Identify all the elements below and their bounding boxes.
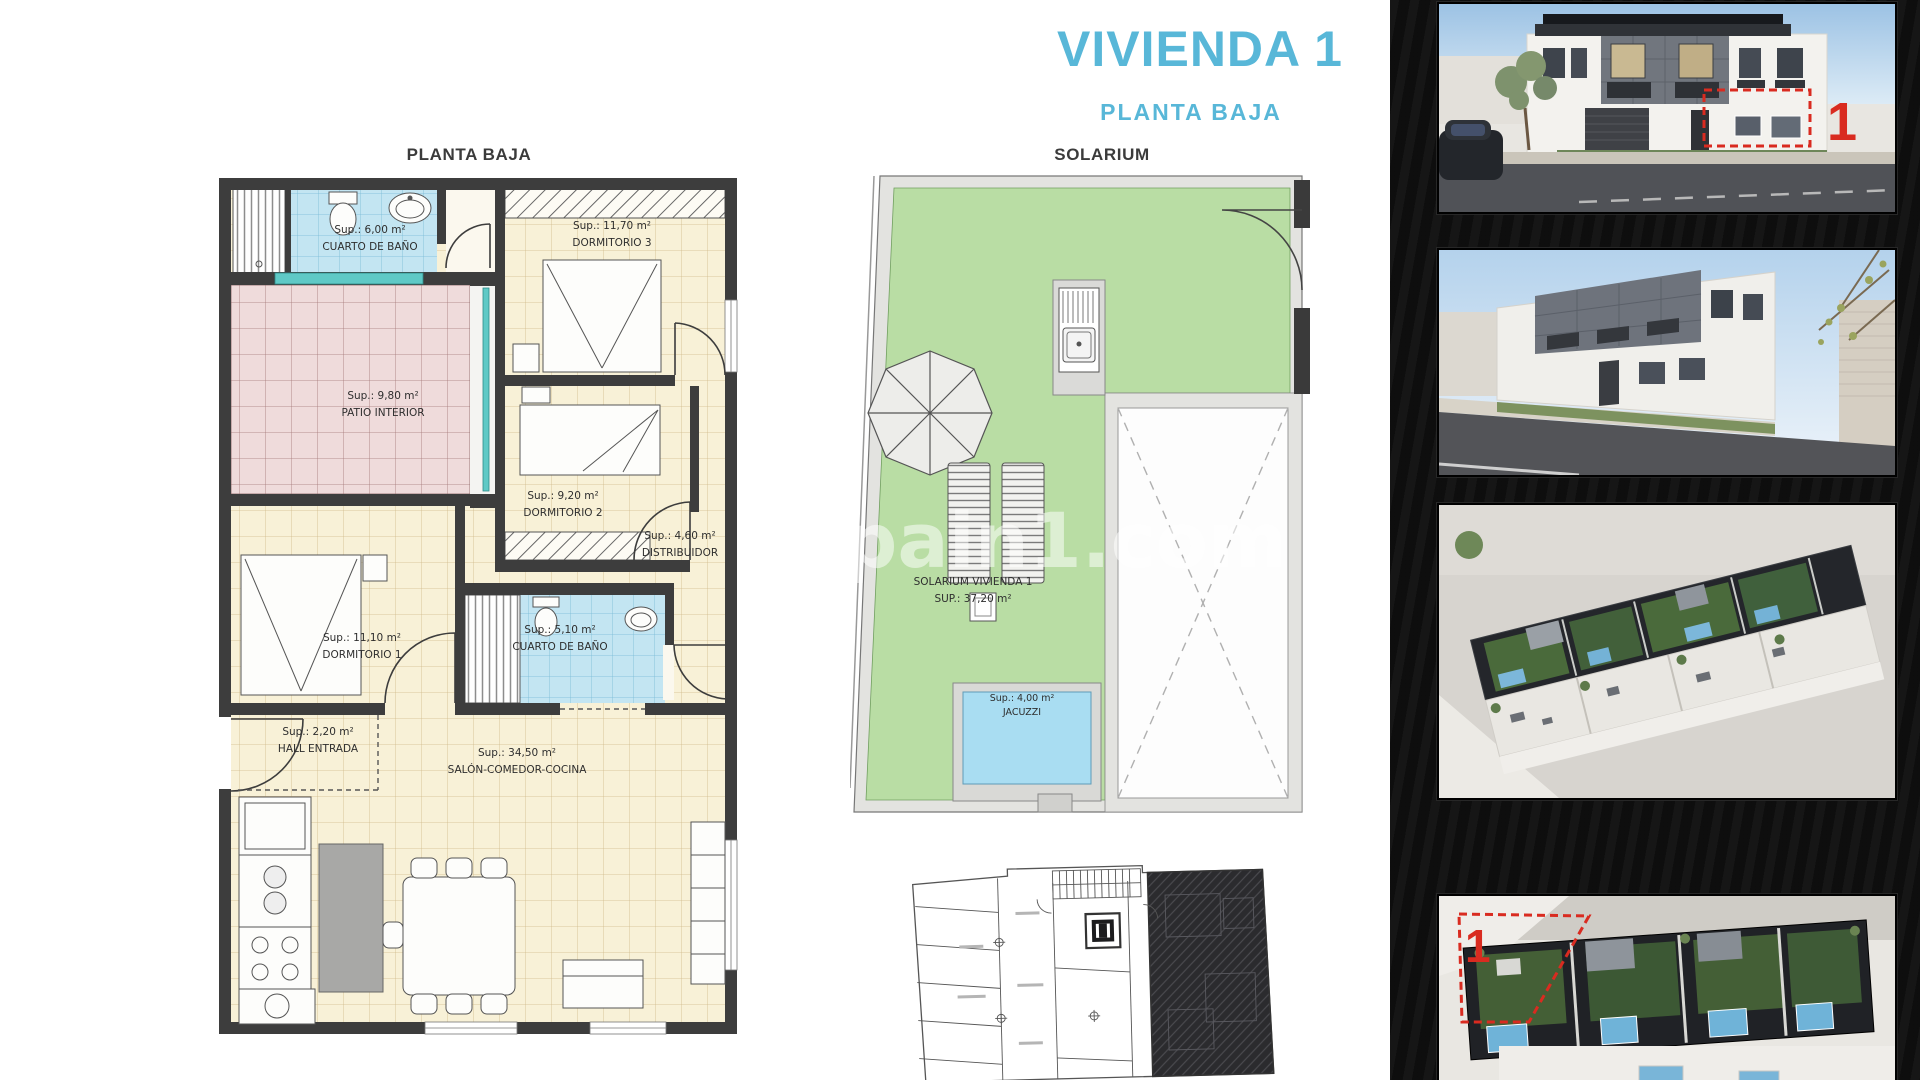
unit-marker-1: 1 [1465,920,1491,972]
floorplan-title: PLANTA BAJA [407,145,532,165]
closet-dorm2-icon [505,532,650,560]
sink-icon [389,193,431,223]
photo-aerial-building [1437,503,1897,800]
parasol-icon [868,351,992,475]
kitchen-island [319,844,383,992]
watermark: pain1.com [843,496,1287,585]
page-title: VIVIENDA 1 [1057,20,1343,78]
room-label-dorm1: Sup.: 11,10 m²DORMITORIO 1 [322,630,401,664]
outdoor-sink-icon [1053,280,1105,395]
room-label-bath2: Sup.: 5,10 m²CUARTO DE BAÑO [512,622,607,656]
photo-street-elevation: 1 [1437,2,1897,214]
photo-sidebar: 1 [1390,0,1920,1080]
solarium-title: SOLARIUM [1054,145,1149,165]
photo-corner-view [1437,248,1897,477]
room-label-patio: Sup.: 9,80 m²PATIO INTERIOR [341,388,424,422]
page-root: VIVIENDA 1 PLANTA BAJA PLANTA BAJA SOLAR… [0,0,1920,1080]
garage-door [1585,108,1649,152]
solarium-label: SOLARIUM VIVIENDA 1SUP.: 37,20 m² [914,574,1033,608]
room-label-dorm2: Sup.: 9,20 m²DORMITORIO 2 [523,488,602,522]
photo-rooftop-solarium: 1 [1437,894,1897,1080]
page-subtitle: PLANTA BAJA [1100,99,1282,126]
solarium-plan [850,168,1320,818]
floor-plan [213,172,743,1040]
room-label-salon: Sup.: 34,50 m²SALÓN-COMEDOR-COCINA [448,745,587,779]
sink-icon [625,607,657,631]
bath-vestibule [446,184,495,275]
kitchen-counter [239,797,315,1024]
stove-icon [239,927,311,989]
key-plan [905,862,1277,1080]
elevator-icon [1086,913,1121,948]
room-label-hall: Sup.: 2,20 m²HALL ENTRADA [278,724,358,758]
unit-marker-1: 1 [1827,92,1857,152]
jacuzzi-label: Sup.: 4,00 m²JACUZZI [990,692,1055,720]
window-glass-icon [483,288,489,491]
closet-dorm3-icon [505,188,725,218]
tree-icon [1455,531,1483,559]
room-label-dorm3: Sup.: 11,70 m²DORMITORIO 3 [572,218,651,252]
room-label-bath1: Sup.: 6,00 m²CUARTO DE BAÑO [322,222,417,256]
room-label-distribuidor: Sup.: 4,60 m²DISTRIBUIDOR [642,528,718,562]
